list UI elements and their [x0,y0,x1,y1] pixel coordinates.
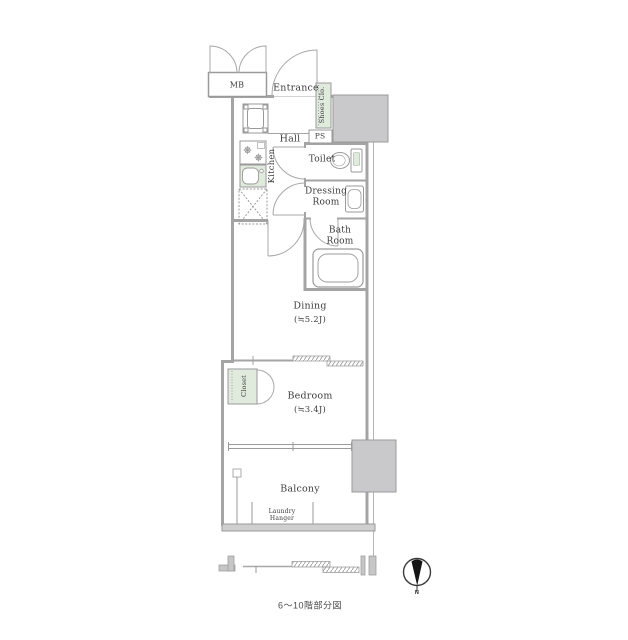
compass-north-label: N [415,590,419,596]
dining-size-label: (≒5.2J) [294,315,326,325]
bath-room-label: Bath Room [324,225,356,246]
stove [240,141,266,164]
toilet-label: Toilet [309,155,336,166]
column [243,104,268,133]
compass-icon [404,559,431,592]
shaft-box-top [333,95,388,142]
shaft-box-bottom [352,440,396,492]
bathtub [313,249,363,287]
caption-label: 6〜10階部分図 [278,601,342,612]
mb-label: MB [230,80,244,89]
closet-label: Closet [241,375,249,397]
dressing-room-label: Dressing Room [300,186,352,207]
adjacent-unit-outline [219,556,376,575]
shoes-closet-label: Shoes Clo. [319,87,327,124]
bedroom-size-label: (≒3.4J) [294,405,326,415]
balcony-label: Balcony [280,483,320,494]
hall-label: Hall [280,133,301,144]
kitchen-sink [240,165,266,187]
dining-label: Dining [293,300,326,311]
bedroom-label: Bedroom [287,390,332,401]
kitchen-label: Kitchen [267,149,277,184]
refrigerator-space [239,189,267,224]
entrance-label: Entrance [273,82,319,93]
floor-plan: MB Entrance Shoes Clo. Hall PS Kitchen T… [0,0,628,640]
ps-label: PS [315,132,326,141]
bedroom-window [228,442,352,451]
laundry-hanger-label: Laundry Hanger [267,508,297,522]
sliding-partition [293,356,363,366]
